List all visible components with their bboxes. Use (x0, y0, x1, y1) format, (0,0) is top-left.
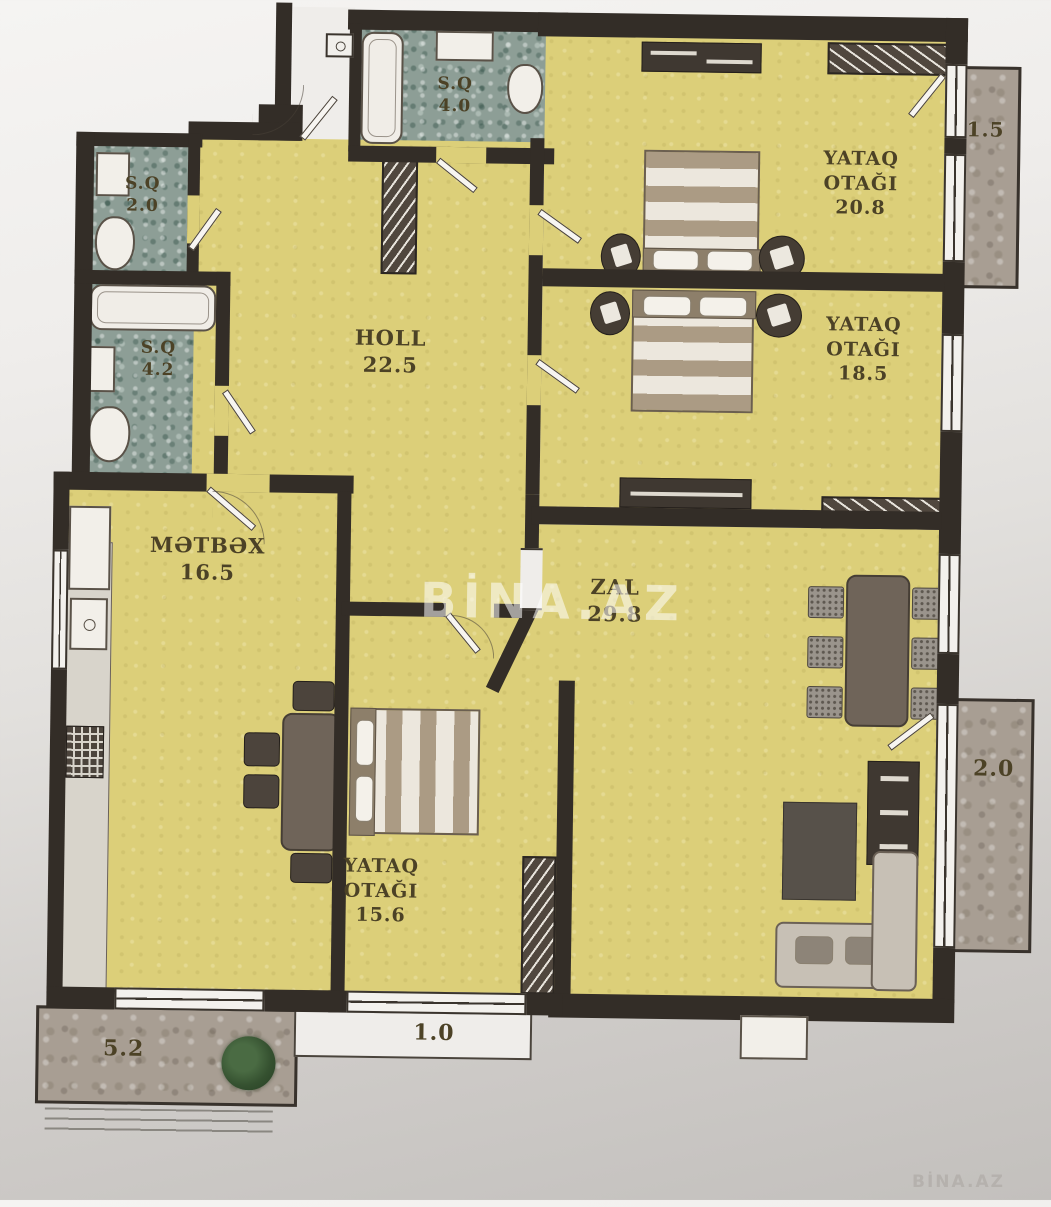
room-label-bedroom-top: YATAQ OTAĞI 20.8 (795, 146, 926, 222)
room-name: OTAĞI (796, 170, 926, 197)
room-name: OTAĞI (311, 878, 451, 905)
floor-plan: S.Q 4.0 S.Q 2.0 S.Q 4.2 HOLL 22.5 YATAQ … (0, 0, 1051, 1207)
sink (436, 31, 494, 62)
wardrobe (641, 42, 761, 74)
balcony-label-bottom-left: 5.2 (83, 1034, 163, 1064)
room-name: S.Q (115, 336, 201, 359)
watermark-corner: BİNA.AZ (912, 1172, 1005, 1192)
room-label-kitchen: MƏTBƏX 16.5 (122, 530, 293, 587)
room-name: YATAQ (799, 312, 929, 339)
balcony-railing (45, 1107, 273, 1134)
chair (808, 586, 844, 618)
room-name: OTAĞI (798, 337, 928, 364)
wall (74, 270, 230, 286)
room-name: HOLL (315, 323, 465, 352)
room-name: S.Q (409, 72, 501, 95)
window (114, 987, 264, 1011)
bed (631, 290, 755, 414)
room-label-bedroom-bottom: YATAQ OTAĞI 15.6 (310, 853, 451, 929)
balcony-window (346, 991, 526, 1016)
room-name: S.Q (101, 172, 185, 195)
bathtub (90, 284, 217, 332)
window (943, 154, 967, 262)
window (940, 334, 963, 432)
chair (243, 774, 279, 808)
bathtub (360, 32, 404, 145)
ac-unit (740, 1015, 809, 1060)
wall (214, 272, 231, 480)
vent-shaft (326, 33, 354, 57)
kitchen-sink (69, 598, 108, 651)
window (937, 554, 960, 654)
room-area: 16.5 (122, 558, 292, 588)
balcony-label-right: 2.0 (957, 754, 1029, 784)
balcony-label-top-right: 1.5 (954, 116, 1016, 143)
room-label-bath-lower-left: S.Q 4.2 (115, 336, 202, 381)
room-area: 2.0 (100, 194, 184, 217)
door-opening (206, 474, 269, 493)
rug (782, 802, 857, 901)
chair (807, 636, 843, 668)
tv-console (866, 761, 919, 866)
radiator (381, 150, 419, 274)
bed (349, 708, 481, 836)
room-area: 4.2 (115, 358, 201, 381)
dresser (619, 477, 751, 509)
room-label-hall: HOLL 22.5 (315, 323, 466, 380)
chair (244, 732, 280, 766)
window (51, 549, 69, 669)
radiator (520, 856, 556, 994)
hall (192, 137, 540, 494)
radiator (827, 42, 947, 76)
chair (292, 681, 334, 712)
room-label-bedroom-mid: YATAQ OTAĞI 18.5 (798, 312, 929, 388)
balcony-right (951, 698, 1035, 953)
dining-table (844, 575, 910, 728)
room-name: MƏTBƏX (123, 530, 293, 560)
room-label-bath-top: S.Q 4.0 (409, 72, 502, 117)
room-label-bath-upper-left: S.Q 2.0 (100, 172, 185, 217)
room-area: 4.0 (409, 94, 501, 117)
room-area: 20.8 (795, 195, 925, 222)
watermark: BİNA.AZ (420, 573, 686, 633)
room-area: 18.5 (798, 361, 928, 388)
balcony-door-opening (933, 704, 958, 948)
wall (348, 10, 568, 33)
room-name: YATAQ (796, 146, 926, 173)
balcony-top-right (960, 66, 1021, 289)
room-area: 22.5 (315, 350, 465, 379)
wall (76, 132, 202, 148)
stove (65, 726, 104, 779)
balcony-label-bottom-center: 1.0 (394, 1018, 474, 1048)
room-area: 15.6 (310, 902, 450, 929)
room-name: YATAQ (311, 853, 451, 880)
kitchen-table (280, 713, 340, 852)
sofa-chaise (871, 851, 919, 992)
chair (806, 686, 842, 718)
bed (643, 150, 761, 278)
fridge (68, 506, 111, 591)
